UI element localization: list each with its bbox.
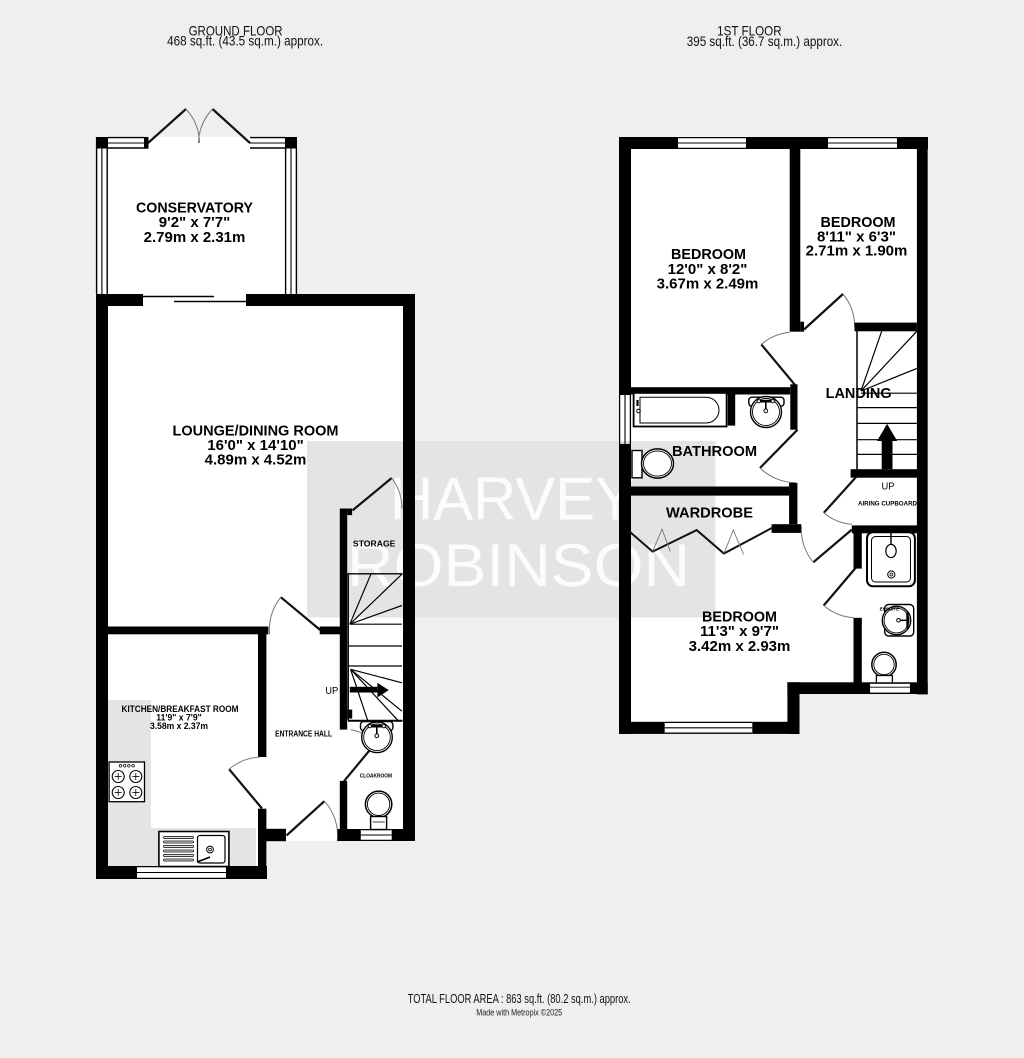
svg-text:BATHROOM: BATHROOM [672,443,757,460]
svg-text:3.58m x 2.37m: 3.58m x 2.37m [150,721,208,731]
svg-text:Made with Metropix ©2025: Made with Metropix ©2025 [476,1008,562,1018]
svg-text:WARDROBE: WARDROBE [666,505,753,522]
svg-text:3.67m x 2.49m: 3.67m x 2.49m [657,276,759,293]
svg-text:HARVEY: HARVEY [390,466,635,533]
svg-text:395 sq.ft. (36.7 sq.m.) approx: 395 sq.ft. (36.7 sq.m.) approx. [687,34,843,49]
svg-text:UP: UP [882,480,895,492]
svg-text:UP: UP [325,685,338,697]
svg-text:STORAGE: STORAGE [353,538,396,548]
svg-text:ROBINSON: ROBINSON [347,532,690,599]
svg-text:CLOAKROOM: CLOAKROOM [360,774,393,780]
svg-text:ENTRANCE HALL: ENTRANCE HALL [275,729,332,739]
svg-text:TOTAL FLOOR AREA : 863 sq.ft.: TOTAL FLOOR AREA : 863 sq.ft. (80.2 sq.m… [408,991,631,1006]
svg-text:ENSUITE: ENSUITE [880,606,900,611]
svg-text:3.42m x 2.93m: 3.42m x 2.93m [689,638,791,655]
svg-text:AIRING CUPBOARD: AIRING CUPBOARD [858,501,917,508]
svg-text:2.79m x 2.31m: 2.79m x 2.31m [144,229,246,246]
svg-text:468 sq.ft. (43.5 sq.m.) approx: 468 sq.ft. (43.5 sq.m.) approx. [167,34,323,49]
svg-text:4.89m x 4.52m: 4.89m x 4.52m [205,452,307,469]
svg-text:2.71m x 1.90m: 2.71m x 1.90m [806,243,908,260]
